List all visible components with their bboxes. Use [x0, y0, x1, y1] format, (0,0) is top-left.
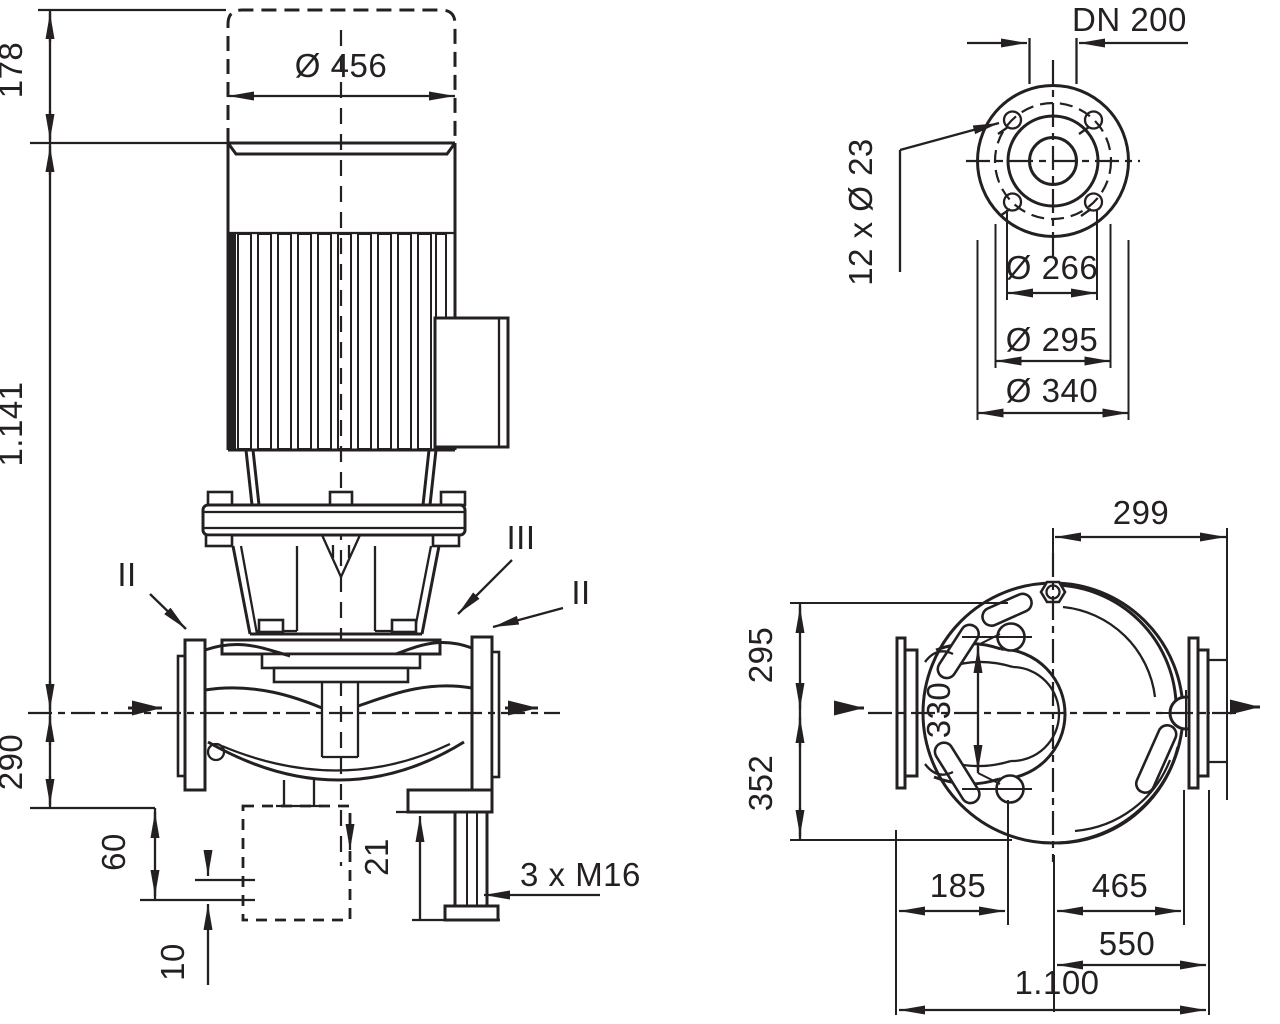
- dim-foot-height: 60: [95, 833, 132, 871]
- section-label-right: II: [571, 574, 590, 611]
- dim-foot-thread: 3 x M16: [520, 856, 641, 893]
- flange-bolt-holes: [998, 112, 1102, 217]
- motor-cooling-fins: [228, 233, 446, 449]
- foot-dimensions: 60 10 21 3 x M16: [95, 808, 641, 985]
- dim-flange-outer: Ø 340: [1006, 372, 1098, 409]
- dim-total-height: 1.141: [0, 381, 29, 466]
- pump-dimensional-drawing: Ø 456: [0, 0, 1280, 1024]
- pump-lantern: [222, 535, 440, 682]
- dim-total-length: 1.100: [1014, 964, 1099, 1001]
- dim-center-to-flange-edge: 299: [1113, 494, 1170, 531]
- front-view: Ø 456: [0, 10, 641, 985]
- dim-base-height: 10: [154, 943, 191, 981]
- optional-foot-dashed: [243, 806, 350, 920]
- flange-view: DN 200 12 x Ø 23 Ø 266 Ø 295 Ø 340: [842, 1, 1188, 420]
- dim-bolt-circle: Ø 295: [1006, 321, 1098, 358]
- section-label-left: II: [117, 556, 136, 593]
- dim-pad-height: 21: [358, 838, 395, 876]
- motor-flange: [203, 492, 465, 546]
- dim-bolt-spacing: 330: [920, 682, 957, 739]
- dim-center-to-top: 295: [742, 627, 779, 684]
- dim-envelope-height: 178: [0, 42, 29, 99]
- plan-view: 299 295 352 330 185 465: [742, 494, 1260, 1015]
- dim-center-to-flange-face: 550: [1099, 925, 1156, 962]
- bolt-holes-dimension: 12 x Ø 23: [842, 123, 999, 286]
- section-label-top: III: [506, 519, 535, 556]
- dim-center-to-bottom: 352: [742, 755, 779, 812]
- dim-raised-face: Ø 266: [1006, 249, 1098, 286]
- support-foot: [396, 790, 498, 920]
- dim-foot-offset-left: 185: [930, 867, 987, 904]
- dim-centerline-height: 290: [0, 734, 29, 791]
- dim-bolt-holes: 12 x Ø 23: [842, 138, 879, 286]
- dim-foot-offset-right: 465: [1092, 867, 1149, 904]
- terminal-box: [435, 318, 508, 447]
- dim-nominal-diameter: DN 200: [1072, 1, 1187, 38]
- drawing-canvas: Ø 456: [0, 0, 1280, 1024]
- nominal-diameter-dimension: DN 200: [967, 1, 1188, 84]
